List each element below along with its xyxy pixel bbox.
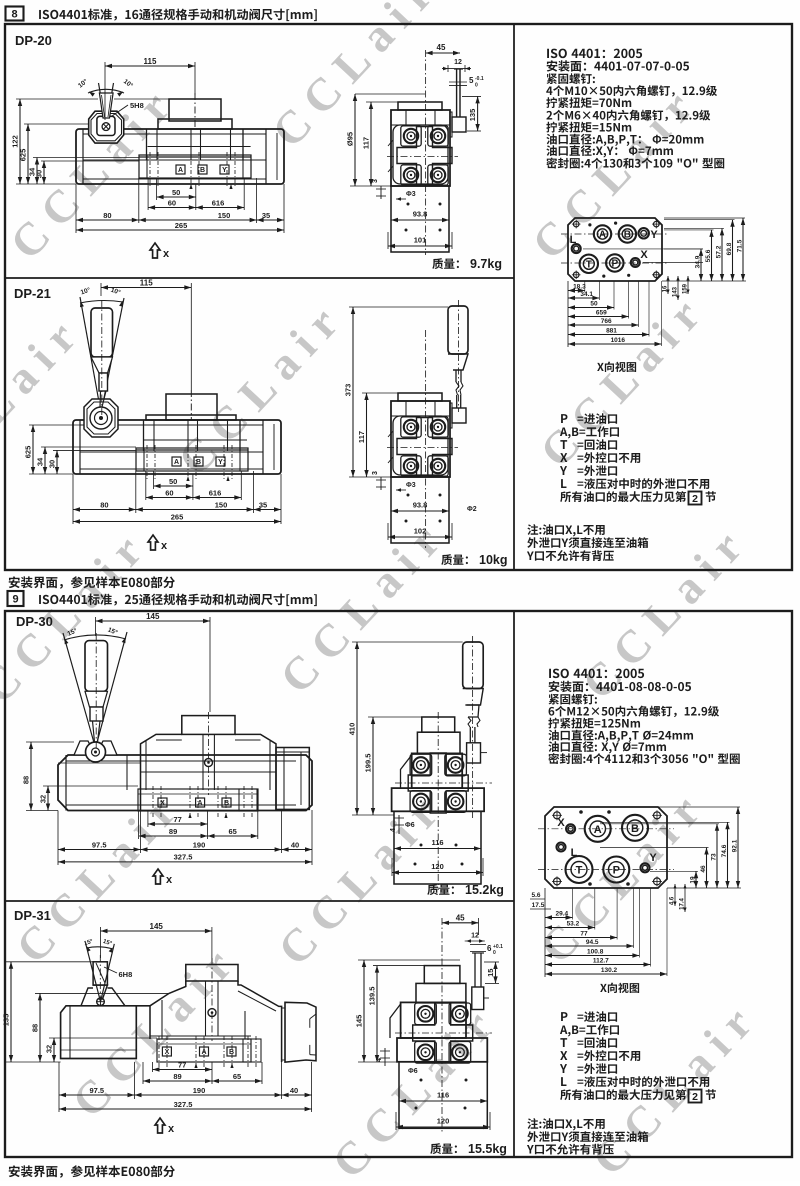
- svg-text:A: A: [174, 459, 179, 466]
- svg-text:74.6: 74.6: [721, 844, 728, 857]
- svg-text:T: T: [576, 865, 583, 877]
- svg-text:190: 190: [193, 1086, 206, 1095]
- svg-text:145: 145: [146, 612, 160, 621]
- svg-text:80: 80: [100, 500, 108, 509]
- svg-text:73: 73: [711, 853, 718, 861]
- svg-text:Φ6: Φ6: [408, 1068, 418, 1075]
- svg-text:45: 45: [456, 914, 465, 923]
- svg-text:4: 4: [390, 828, 397, 832]
- svg-text:145: 145: [150, 922, 164, 931]
- svg-text:x: x: [168, 1123, 175, 1135]
- svg-text:46: 46: [700, 865, 707, 873]
- svg-text:6H8: 6H8: [119, 970, 133, 979]
- svg-text:616: 616: [212, 198, 225, 207]
- svg-text:x: x: [163, 248, 170, 260]
- svg-text:97.5: 97.5: [89, 1086, 104, 1095]
- svg-text:88: 88: [22, 776, 31, 784]
- svg-text:19: 19: [690, 876, 697, 884]
- svg-text:93.8: 93.8: [413, 210, 428, 219]
- svg-text:Φ3: Φ3: [406, 191, 416, 198]
- svg-text:881: 881: [606, 328, 617, 335]
- svg-text:B: B: [229, 1049, 234, 1056]
- svg-text:2: 2: [692, 493, 698, 505]
- svg-text:373: 373: [344, 384, 353, 397]
- svg-text:53.2: 53.2: [567, 921, 580, 928]
- svg-text:34.9: 34.9: [695, 255, 702, 268]
- svg-text:0: 0: [493, 950, 496, 956]
- svg-text:659: 659: [596, 310, 607, 317]
- svg-text:9.7kg: 9.7kg: [470, 257, 502, 271]
- svg-text:P: P: [611, 259, 618, 270]
- svg-text:35: 35: [262, 211, 270, 220]
- svg-text:77: 77: [580, 931, 588, 938]
- svg-text:50: 50: [590, 301, 598, 308]
- svg-text:97.5: 97.5: [92, 840, 107, 849]
- svg-text:6: 6: [487, 944, 492, 953]
- svg-text:115: 115: [140, 278, 153, 287]
- svg-text:17.5: 17.5: [532, 902, 545, 909]
- svg-text:9: 9: [12, 594, 18, 606]
- svg-text:135: 135: [468, 109, 477, 122]
- svg-text:DP-21: DP-21: [14, 286, 51, 301]
- svg-text:102: 102: [414, 527, 427, 536]
- svg-text:17.4: 17.4: [680, 898, 686, 910]
- svg-text:120: 120: [437, 1117, 450, 1126]
- svg-text:69.8: 69.8: [726, 242, 733, 255]
- svg-text:4: 4: [376, 1058, 383, 1062]
- svg-text:Φ3: Φ3: [406, 482, 416, 489]
- svg-text:B: B: [200, 167, 205, 174]
- svg-text:0: 0: [475, 83, 478, 89]
- svg-text:x: x: [166, 874, 173, 886]
- svg-text:A: A: [178, 167, 183, 174]
- svg-text:80: 80: [103, 211, 111, 220]
- svg-text:T: T: [586, 259, 592, 270]
- svg-text:15.5kg: 15.5kg: [468, 1142, 507, 1156]
- svg-text:Φ2: Φ2: [467, 506, 477, 513]
- svg-text:30: 30: [35, 170, 44, 178]
- svg-text:50: 50: [169, 477, 177, 486]
- svg-text:3: 3: [372, 471, 379, 475]
- svg-text:40: 40: [290, 1086, 298, 1095]
- svg-text:5: 5: [469, 76, 474, 85]
- svg-text:65: 65: [233, 1072, 241, 1081]
- svg-text:145: 145: [355, 1015, 364, 1028]
- svg-text:18.3: 18.3: [573, 284, 586, 291]
- svg-text:P: P: [613, 865, 620, 877]
- svg-text:12: 12: [454, 59, 462, 66]
- svg-text:3: 3: [372, 179, 379, 183]
- svg-text:71.5: 71.5: [737, 239, 744, 252]
- svg-text:625: 625: [19, 149, 28, 162]
- svg-text:60: 60: [168, 198, 176, 207]
- svg-text:65: 65: [229, 827, 237, 836]
- svg-text:Y: Y: [222, 167, 227, 174]
- svg-text:Ø95: Ø95: [346, 132, 355, 146]
- svg-text:265: 265: [171, 512, 184, 521]
- svg-text:101: 101: [414, 236, 427, 245]
- svg-text:159: 159: [683, 283, 689, 294]
- svg-text:4.6: 4.6: [670, 896, 676, 905]
- svg-text:8: 8: [11, 9, 17, 21]
- svg-text:1016: 1016: [611, 337, 626, 344]
- svg-text:94.5: 94.5: [586, 939, 599, 946]
- svg-text:-0.1: -0.1: [475, 76, 484, 82]
- svg-text:10kg: 10kg: [479, 553, 508, 567]
- svg-text:143: 143: [673, 286, 679, 297]
- svg-text:34.1: 34.1: [580, 291, 593, 298]
- svg-text:327.5: 327.5: [174, 1100, 193, 1109]
- svg-text:5.6: 5.6: [531, 892, 540, 899]
- svg-text:DP-30: DP-30: [16, 614, 53, 629]
- svg-text:55.6: 55.6: [705, 249, 712, 262]
- svg-text:625: 625: [24, 446, 33, 459]
- svg-text:Y: Y: [650, 229, 658, 241]
- svg-text:5H8: 5H8: [130, 101, 144, 110]
- svg-text:130.2: 130.2: [601, 967, 618, 974]
- svg-text:15.2kg: 15.2kg: [465, 883, 504, 897]
- svg-text:45: 45: [437, 43, 446, 52]
- svg-text:Φ6: Φ6: [405, 822, 415, 829]
- svg-text:199.5: 199.5: [364, 754, 373, 773]
- svg-text:29.4: 29.4: [555, 911, 568, 918]
- svg-text:190: 190: [193, 840, 206, 849]
- svg-text:92.1: 92.1: [732, 839, 739, 852]
- svg-text:89: 89: [169, 827, 177, 836]
- svg-text:50: 50: [172, 188, 180, 197]
- svg-text:B: B: [196, 459, 201, 466]
- svg-text:112.7: 112.7: [593, 958, 609, 965]
- svg-text:A: A: [599, 230, 606, 241]
- svg-text:265: 265: [175, 221, 188, 230]
- svg-text:DP-31: DP-31: [14, 908, 51, 923]
- svg-text:16: 16: [663, 285, 669, 292]
- svg-text:100.8: 100.8: [587, 949, 604, 956]
- svg-text:93.8: 93.8: [413, 501, 428, 510]
- svg-text:88: 88: [31, 1024, 40, 1032]
- svg-text:2: 2: [692, 1091, 698, 1103]
- svg-text:57.2: 57.2: [716, 245, 723, 258]
- svg-text:12: 12: [471, 933, 479, 940]
- svg-text:117: 117: [362, 137, 371, 149]
- svg-text:135: 135: [2, 1014, 11, 1027]
- svg-text:116: 116: [437, 1091, 449, 1100]
- svg-text:122: 122: [11, 135, 20, 148]
- svg-text:34: 34: [36, 457, 45, 466]
- svg-text:77: 77: [174, 815, 182, 824]
- svg-text:150: 150: [215, 500, 228, 509]
- svg-text:410: 410: [348, 723, 357, 736]
- svg-text:115: 115: [144, 57, 157, 66]
- svg-text:116: 116: [431, 838, 443, 847]
- svg-text:X: X: [640, 249, 648, 261]
- svg-text:x: x: [161, 540, 168, 552]
- svg-text:30: 30: [48, 460, 57, 468]
- svg-text:89: 89: [173, 1072, 181, 1081]
- svg-text:32: 32: [45, 1045, 54, 1053]
- svg-text:139.5: 139.5: [368, 987, 377, 1006]
- svg-text:120: 120: [431, 862, 444, 871]
- svg-text:32: 32: [39, 795, 48, 803]
- svg-text:B: B: [631, 823, 639, 835]
- svg-text:Y: Y: [649, 852, 657, 864]
- svg-text:766: 766: [601, 318, 612, 325]
- svg-text:15: 15: [486, 969, 495, 977]
- svg-text:77: 77: [178, 1060, 186, 1069]
- svg-text:40: 40: [291, 840, 299, 849]
- svg-text:Y: Y: [218, 459, 223, 466]
- svg-text:616: 616: [209, 488, 222, 497]
- svg-text:B: B: [624, 230, 631, 241]
- svg-text:A: A: [594, 824, 602, 836]
- svg-text:B: B: [224, 800, 229, 807]
- svg-text:150: 150: [218, 211, 231, 220]
- svg-text:117: 117: [357, 431, 366, 443]
- svg-text:60: 60: [165, 488, 173, 497]
- svg-text:35: 35: [259, 500, 267, 509]
- svg-text:327.5: 327.5: [174, 853, 193, 862]
- svg-text:DP-20: DP-20: [15, 33, 52, 48]
